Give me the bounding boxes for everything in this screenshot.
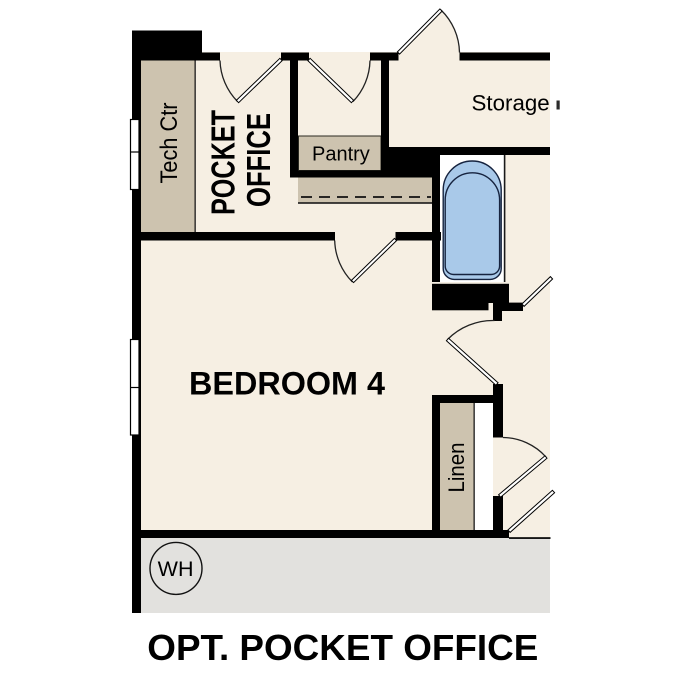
svg-text:POCKET: POCKET (205, 110, 242, 215)
svg-text:BEDROOM 4: BEDROOM 4 (189, 366, 385, 402)
svg-text:OPT. POCKET OFFICE: OPT. POCKET OFFICE (147, 627, 538, 668)
svg-text:Pantry: Pantry (312, 143, 370, 165)
svg-text:Linen: Linen (444, 443, 469, 493)
svg-text:Storage: Storage (472, 91, 550, 116)
svg-text:Tech Ctr: Tech Ctr (156, 102, 183, 183)
svg-text:WH: WH (158, 557, 194, 581)
svg-text:OFFICE: OFFICE (240, 113, 277, 207)
